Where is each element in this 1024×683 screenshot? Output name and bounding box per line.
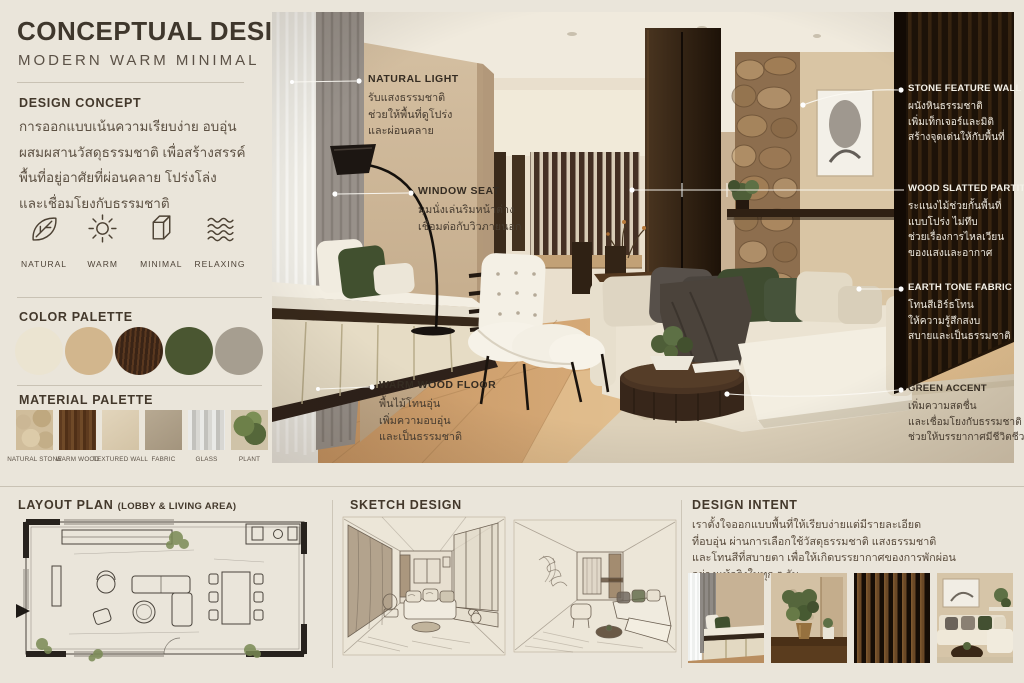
sketch-design-heading: SKETCH DESIGN: [350, 498, 462, 512]
thumbnail-wood-slat-wall: [854, 573, 930, 663]
keyword-icons-row: NATURAL WARM MINIMAL RELAXING: [16, 212, 248, 269]
material-natural-stone: NATURAL STONE: [16, 410, 53, 463]
annotation-stone-feature-wall: STONE FEATURE WALL ผนังหินธรรมชาติ เพิ่ม…: [908, 83, 1022, 146]
keyword-label: RELAXING: [194, 259, 245, 269]
thumbnail-plant-corner: [771, 573, 847, 663]
intent-line: เราตั้งใจออกแบบพื้นที่ให้เรียบง่ายแต่มีร…: [692, 517, 956, 534]
material-fabric: FABRIC: [145, 410, 182, 463]
material-warm-wood: WARM WOOD: [59, 410, 96, 463]
divider: [17, 82, 244, 83]
floor-plan-drawing: [14, 514, 318, 672]
design-intent-heading: DESIGN INTENT: [692, 498, 798, 512]
layout-plan-heading: LAYOUT PLAN (LOBBY & LIVING AREA): [18, 498, 236, 512]
material-swatch: [102, 410, 139, 450]
concept-line: การออกแบบเน้นความเรียบง่าย อบอุ่น: [19, 114, 246, 140]
keyword-relaxing: RELAXING: [192, 212, 248, 269]
annotation-window-seat: WINDOW SEAT มุมนั่งเล่นริมหน้าต่าง เชื่อ…: [418, 185, 522, 235]
annotation-earth-tone-fabric: EARTH TONE FABRIC โทนสีเอิร์ธโทน ให้ความ…: [908, 282, 1012, 345]
material-swatch: [16, 410, 53, 450]
material-swatch: [59, 410, 96, 450]
annotation-wood-slatted-partition: WOOD SLATTED PARTITION ระแนงไม้ช่วยกั้นพ…: [908, 183, 1024, 261]
layout-plan-subheading: (LOBBY & LIVING AREA): [118, 501, 237, 512]
waves-icon: [203, 212, 236, 250]
sun-icon: [86, 212, 119, 250]
thumbnail-sofa-corner: [937, 573, 1013, 663]
sketch-one: [342, 515, 506, 657]
page-subtitle: MODERN WARM MINIMAL: [18, 52, 259, 70]
material-swatch: [188, 410, 225, 450]
main-render-image: NATURAL LIGHT รับแสงธรรมชาติ ช่วยให้พื้น…: [272, 12, 1014, 463]
concept-line: ผสมผสานวัสดุธรรมชาติ เพื่อสร้างสรรค์: [19, 140, 246, 166]
divider: [17, 297, 262, 298]
color-swatch-cream: [15, 327, 63, 375]
material-textured-wall: TEXTURED WALL: [102, 410, 139, 463]
keyword-natural: NATURAL: [16, 212, 72, 269]
annotation-warm-wood-floor: WARM WOOD FLOOR พื้นไม้โทนอุ่น เพิ่มความ…: [379, 379, 496, 446]
color-palette-heading: COLOR PALETTE: [19, 310, 133, 324]
material-swatch: [231, 410, 268, 450]
keyword-minimal: MINIMAL: [133, 212, 189, 269]
color-swatch-dark-wood: [115, 327, 163, 375]
color-palette-row: [15, 327, 265, 375]
intent-line: ที่อบอุ่น ผ่านการเลือกใช้วัสดุธรรมชาติ แ…: [692, 534, 956, 551]
color-swatch-sand: [65, 327, 113, 375]
material-plant: PLANT: [231, 410, 268, 463]
design-concept-text: การออกแบบเน้นความเรียบง่าย อบอุ่น ผสมผสา…: [19, 114, 246, 216]
box-icon: [145, 212, 178, 250]
color-swatch-grey: [215, 327, 263, 375]
page-title: CONCEPTUAL DESIGN: [17, 16, 313, 47]
keyword-warm: WARM: [75, 212, 131, 269]
design-concept-heading: DESIGN CONCEPT: [19, 96, 141, 110]
divider: [681, 500, 682, 668]
keyword-label: WARM: [87, 259, 118, 269]
keyword-label: NATURAL: [21, 259, 67, 269]
divider: [332, 500, 333, 668]
divider: [0, 486, 1024, 487]
material-palette-row: NATURAL STONE WARM WOOD TEXTURED WALL FA…: [16, 410, 268, 463]
material-palette-heading: MATERIAL PALETTE: [19, 393, 153, 407]
intent-line: และโทนสีที่สบายตา เพื่อให้เกิดบรรยากาศขอ…: [692, 550, 956, 567]
divider: [17, 385, 262, 386]
annotation-green-accent: GREEN ACCENT เพิ่มความสดชื่น และเชื่อมโย…: [908, 383, 1024, 446]
sketch-two: [513, 518, 677, 654]
leaf-icon: [28, 212, 61, 250]
thumbnail-window-seat: [688, 573, 764, 663]
material-swatch: [145, 410, 182, 450]
design-board: CONCEPTUAL DESIGN MODERN WARM MINIMAL DE…: [0, 0, 1024, 683]
keyword-label: MINIMAL: [140, 259, 182, 269]
material-glass: GLASS: [188, 410, 225, 463]
concept-line: พื้นที่อยู่อาศัยที่ผ่อนคลาย โปร่งโล่ง: [19, 165, 246, 191]
plan-plants: [36, 531, 261, 662]
design-intent-thumbnails: [688, 573, 1013, 663]
color-swatch-green: [165, 327, 213, 375]
annotation-natural-light: NATURAL LIGHT รับแสงธรรมชาติ ช่วยให้พื้น…: [368, 73, 459, 140]
